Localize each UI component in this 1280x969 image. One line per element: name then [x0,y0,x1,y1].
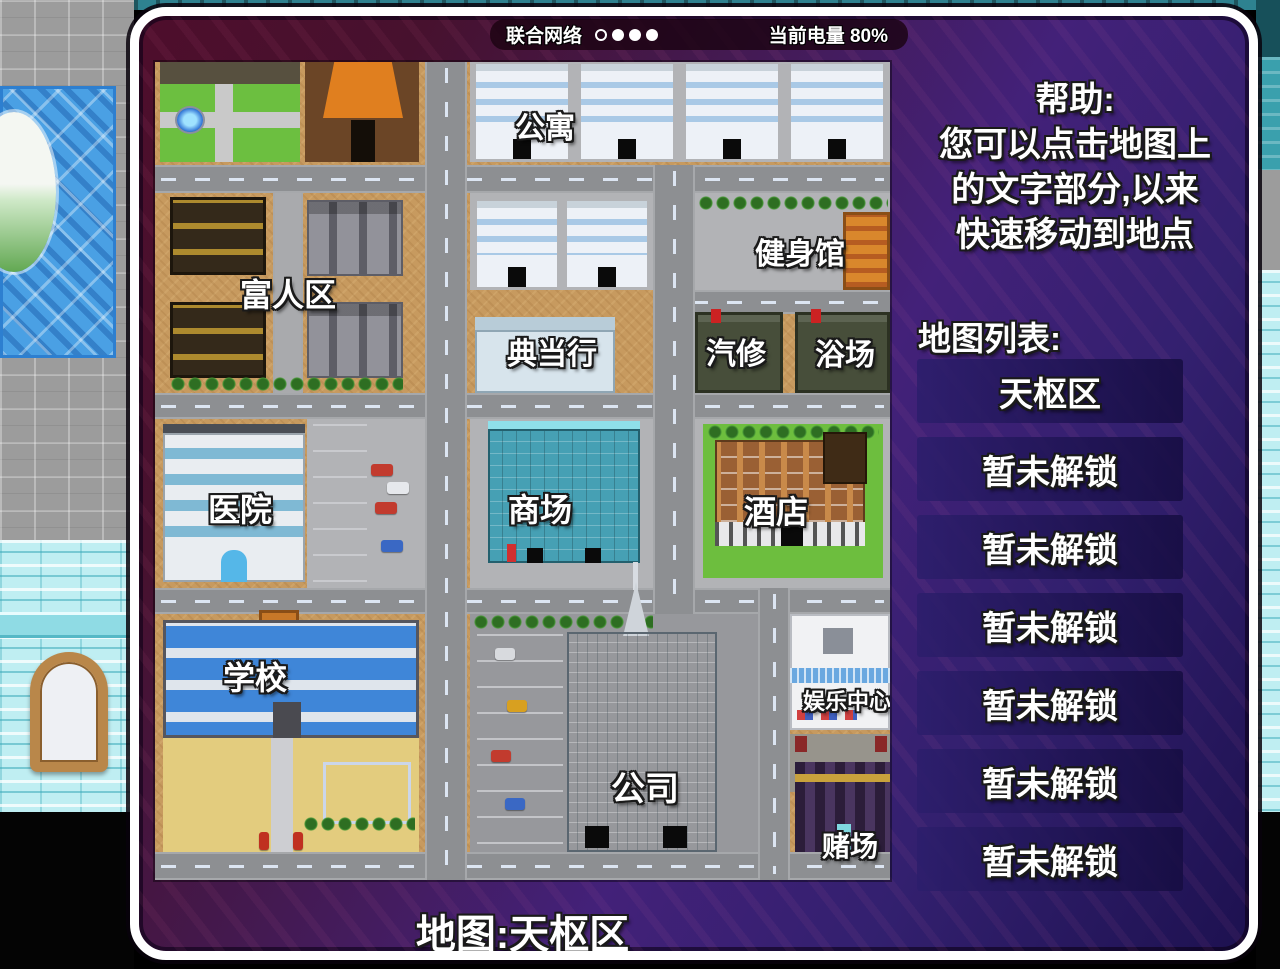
car [381,540,403,552]
map-casino-turret [795,736,807,752]
map-fountain [177,108,203,132]
map-location-rich-district[interactable]: 富人区 [240,270,336,316]
map-apartment-building [581,64,673,159]
map-location-school[interactable]: 学校 [223,653,287,699]
map-mansion [170,197,266,275]
map-hotel-tower [823,432,867,484]
road-vertical [758,588,790,880]
map-list-item-locked-5[interactable]: 暂未解锁 [917,749,1183,813]
map-office-building [477,201,557,287]
map-list-item-locked-6[interactable]: 暂未解锁 [917,827,1183,891]
phone-map-panel: 联合网络 当前电量 80% [130,7,1258,960]
map-location-entertainment[interactable]: 娱乐中心 [803,684,890,716]
map-grey-building [307,200,403,276]
map-parking-lines [477,634,563,848]
map-location-bathhouse[interactable]: 浴场 [815,330,875,374]
car [507,700,527,712]
map-office-building [567,201,647,287]
map-location-apartment[interactable]: 公寓 [515,103,575,147]
road-horizontal [155,165,890,193]
map-company-door [585,826,609,848]
car [375,502,397,514]
map-school-path [271,738,293,852]
map-mall-door [527,548,543,563]
map-list-item-locked-4[interactable]: 暂未解锁 [917,671,1183,735]
map-casino-turret [875,736,887,752]
map-apartment-building [686,64,778,159]
map-gym-building [843,212,890,290]
car [387,482,409,494]
tree-row [303,816,415,832]
status-bar: 联合网络 当前电量 80% [490,19,908,50]
map-park-path [215,84,233,162]
background-right-wall [1256,270,1280,812]
map-school-court [323,762,411,824]
background-arched-window [30,652,108,772]
map-location-casino[interactable]: 赌场 [822,825,878,865]
map-list-item-tianshu[interactable]: 天枢区 [917,359,1183,423]
background-right-tiles [1256,0,1280,57]
car [505,798,525,810]
map-temple-roof [323,62,403,118]
car [371,464,393,476]
battery-label: 当前电量 80% [769,21,888,48]
map-mall-door [585,548,601,563]
map-hospital-entrance [221,550,247,582]
map-park-wall [160,62,300,84]
map-location-hospital[interactable]: 医院 [208,485,272,531]
map-apartment-building [791,64,883,159]
map-vending-machine [507,544,516,562]
map-location-mall[interactable]: 商场 [508,485,572,531]
help-line-2: 的文字部分,以来 [905,168,1245,213]
tree-row [170,376,403,392]
map-list-title: 地图列表: [918,312,1061,360]
current-map-name: 地图:天枢区 [155,902,890,960]
map-gate-pillar [259,832,269,850]
help-line-3: 快速移动到地点 [905,213,1245,258]
map-school-gate [273,702,301,738]
help-title: 帮助: [905,78,1245,123]
map-list-item-locked-3[interactable]: 暂未解锁 [917,593,1183,657]
map-parking-lines [313,424,367,582]
road-vertical [653,165,695,615]
background-right-floor [1256,170,1280,270]
map-casino-trim [795,774,890,782]
map-company-tower [567,632,717,852]
map-location-auto-repair[interactable]: 汽修 [706,329,766,373]
map-mast [711,309,721,323]
help-panel: 帮助: 您可以点击地图上 的文字部分,以来 快速移动到地点 [905,78,1245,258]
car [491,750,511,762]
map-list-item-locked-1[interactable]: 暂未解锁 [917,437,1183,501]
car [495,648,515,660]
background-wall-trim [0,612,134,638]
map-entertainment-banner [790,668,890,683]
map-gate-pillar [293,832,303,850]
help-line-1: 您可以点击地图上 [905,123,1245,168]
map-location-company[interactable]: 公司 [611,762,679,811]
background-right-water [1256,57,1280,170]
tree-row [698,195,888,211]
signal-strength-icon [595,29,658,41]
map-company-door [663,826,687,848]
map-entertainment-sign [823,628,853,654]
map-location-hotel[interactable]: 酒店 [744,487,808,533]
map-list-item-locked-2[interactable]: 暂未解锁 [917,515,1183,579]
road-vertical-main [425,62,467,880]
network-label: 联合网络 [506,21,582,48]
background-void [0,812,134,969]
map-mast [811,309,821,323]
city-map: 公寓 健身馆 富人区 典当行 汽修 浴场 医院 商场 酒店 学校 娱乐中心 公司… [155,62,890,880]
map-location-pawnshop[interactable]: 典当行 [507,329,597,373]
map-temple-door [351,120,375,162]
road-horizontal [155,393,890,419]
map-location-gym[interactable]: 健身馆 [755,229,845,273]
